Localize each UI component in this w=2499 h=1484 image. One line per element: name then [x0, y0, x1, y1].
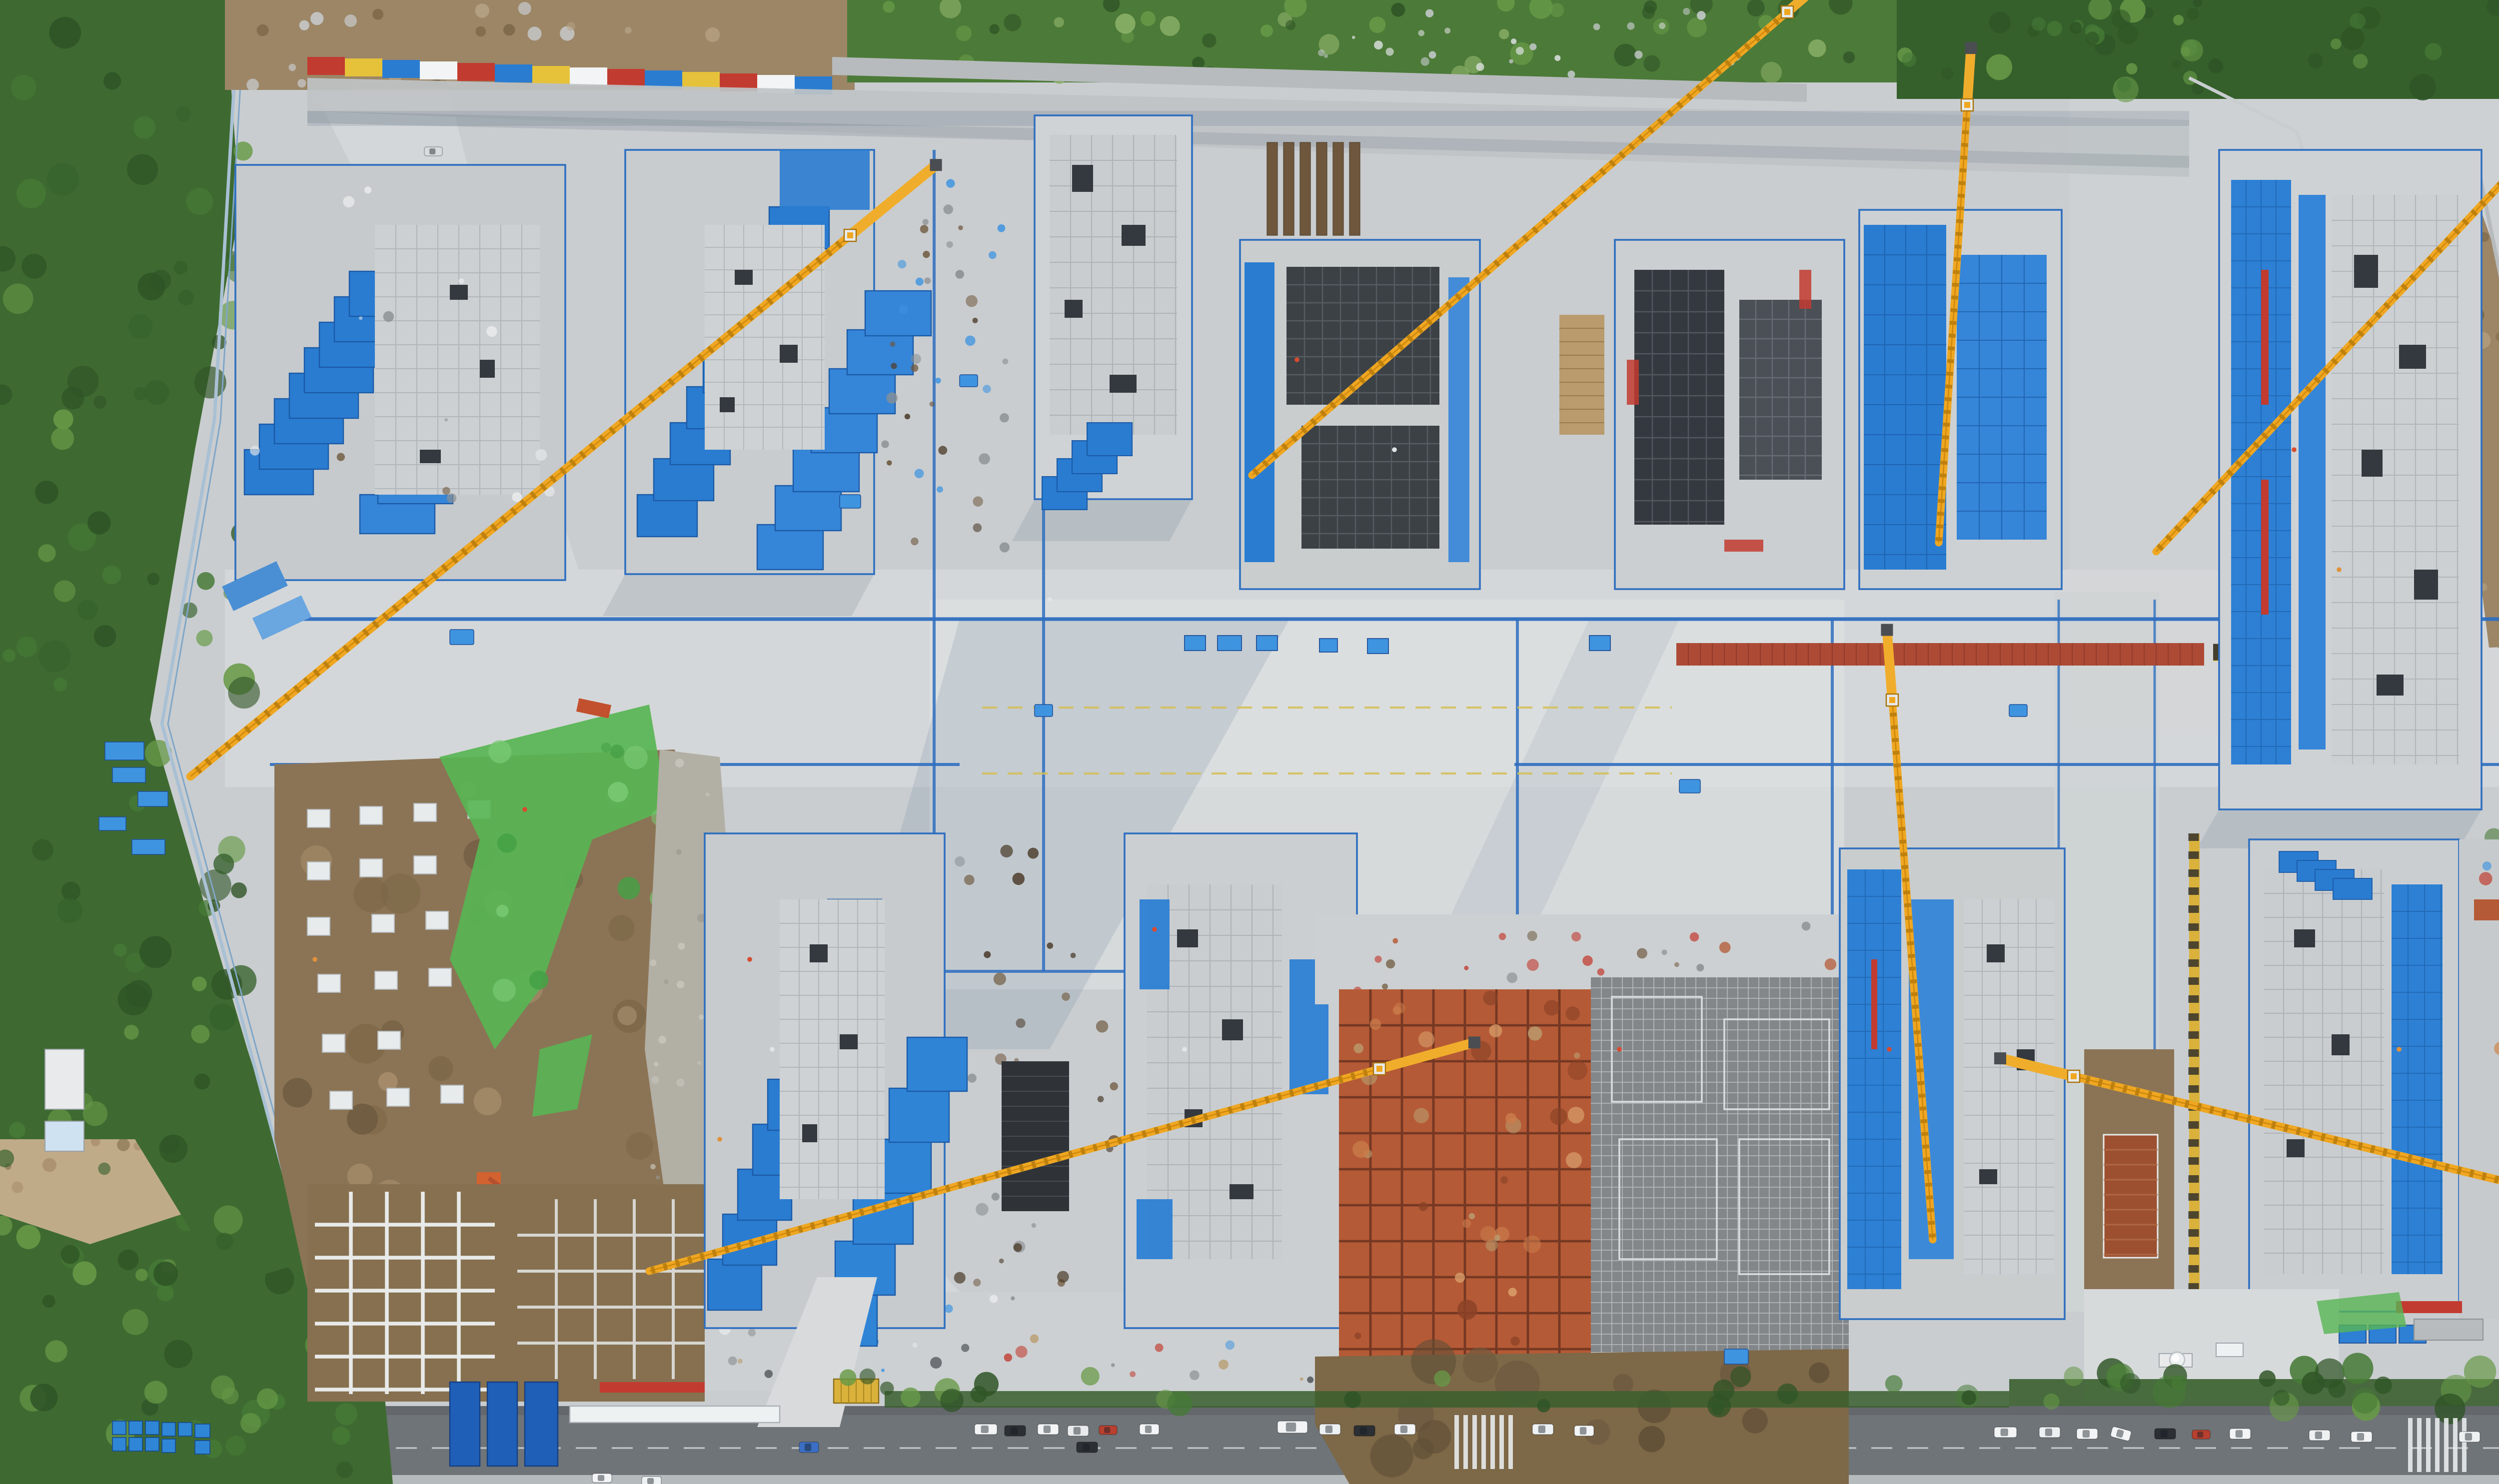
hoist-hazard-strip	[2189, 833, 2200, 1298]
b6-core	[2264, 869, 2384, 1274]
site-offices-blue-roofs	[450, 1382, 558, 1466]
gate-gantry-banner	[600, 1382, 705, 1393]
white-van	[2216, 1343, 2243, 1357]
gate-canopy-east	[2414, 1319, 2483, 1340]
cluster-shadow-t3	[1012, 499, 1192, 541]
t4-blue-side-strip-e	[1448, 277, 1469, 562]
t7-blue-mesh-b	[2299, 195, 2326, 749]
b2-core	[780, 899, 885, 1199]
construction-site-scene	[0, 0, 2499, 1484]
gate-gantry-west	[570, 1406, 780, 1423]
b5-core	[1964, 899, 2054, 1274]
gate-banner-east	[2396, 1301, 2462, 1313]
b5-red-banner	[1871, 959, 1877, 1049]
cluster-shadow-t2	[603, 574, 874, 616]
left-sign-boards	[45, 1049, 84, 1151]
t7-red-banner-a	[2261, 270, 2269, 405]
t6-blue-screen-a	[1864, 225, 1946, 570]
t4-blue-side-strip	[1245, 262, 1274, 562]
hedge-strip-road-east	[2009, 1379, 2499, 1406]
t2-blue-roof-patch	[780, 150, 870, 210]
b5-blue-screen-a	[1847, 869, 1901, 1289]
t5-core-a	[1634, 270, 1724, 525]
b1-foundation-dirt	[307, 1184, 705, 1402]
t5-core-b	[1739, 300, 1822, 480]
laydown-big-orange	[2474, 899, 2499, 920]
t1-core	[375, 225, 540, 495]
t7-red-banner-b	[2261, 480, 2269, 615]
t5-wood-pile	[1559, 315, 1604, 435]
hedge-strip-road-west	[885, 1391, 2009, 1408]
shadow-under-wall	[307, 111, 2189, 126]
b6-blue-screen	[2392, 884, 2443, 1274]
aerial-construction-site-photo	[0, 0, 2499, 1484]
b4-rebar-zone	[1591, 977, 1849, 1352]
